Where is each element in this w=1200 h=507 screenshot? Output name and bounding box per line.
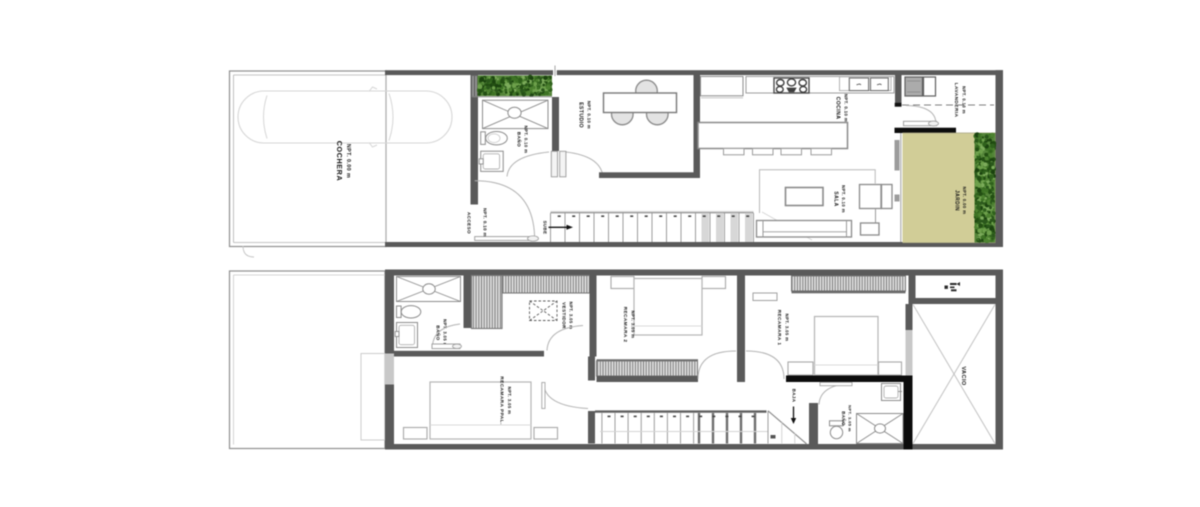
svg-text:NPT. 0.00 m: NPT. 0.00 m [962, 187, 967, 215]
svg-text:NPT. 3.05 m: NPT. 3.05 m [630, 311, 635, 339]
svg-text:RECAMARA PPAL.: RECAMARA PPAL. [499, 376, 505, 425]
svg-text:NPT. 3.05 m: NPT. 3.05 m [847, 405, 852, 432]
svg-text:BAJA: BAJA [791, 389, 796, 403]
svg-text:NPT. 3.05 m: NPT. 3.05 m [442, 319, 447, 347]
svg-text:VESTIDOR: VESTIDOR [561, 302, 566, 329]
svg-text:COCINA: COCINA [835, 97, 841, 120]
svg-text:RECAMARA 2: RECAMARA 2 [622, 307, 628, 343]
svg-text:NPT. 0.10 m: NPT. 0.10 m [482, 208, 487, 237]
svg-text:VACIO: VACIO [960, 366, 966, 386]
svg-text:LAVANDERIA: LAVANDERIA [953, 83, 959, 118]
svg-text:NPT. 0.10 m: NPT. 0.10 m [843, 94, 848, 122]
svg-text:SALA: SALA [833, 191, 839, 206]
svg-text:ACCESO: ACCESO [467, 212, 472, 234]
svg-text:COCHERA: COCHERA [335, 141, 344, 182]
svg-text:NPT. 3.05 m: NPT. 3.05 m [784, 314, 789, 342]
svg-text:BAÑO: BAÑO [841, 411, 846, 426]
svg-text:NPT. 0.10 m: NPT. 0.10 m [961, 86, 966, 114]
svg-text:RECAMARA 1: RECAMARA 1 [776, 310, 782, 346]
svg-text:NPT. 3.05 m: NPT. 3.05 m [568, 302, 573, 330]
svg-text:NPT. 0.10 m: NPT. 0.10 m [586, 101, 591, 129]
svg-text:ESTUDIO: ESTUDIO [578, 102, 584, 128]
svg-text:SUBE: SUBE [542, 221, 547, 235]
svg-text:NPT. 0.00 m: NPT. 0.00 m [345, 144, 351, 178]
svg-text:NPT. 0.10 m: NPT. 0.10 m [841, 185, 846, 213]
svg-text:BAÑO: BAÑO [516, 132, 522, 147]
svg-text:JARDIN: JARDIN [954, 190, 960, 211]
svg-text:NPT. 0.10 m: NPT. 0.10 m [523, 126, 528, 154]
svg-text:NPT. 3.05 m: NPT. 3.05 m [507, 387, 512, 415]
